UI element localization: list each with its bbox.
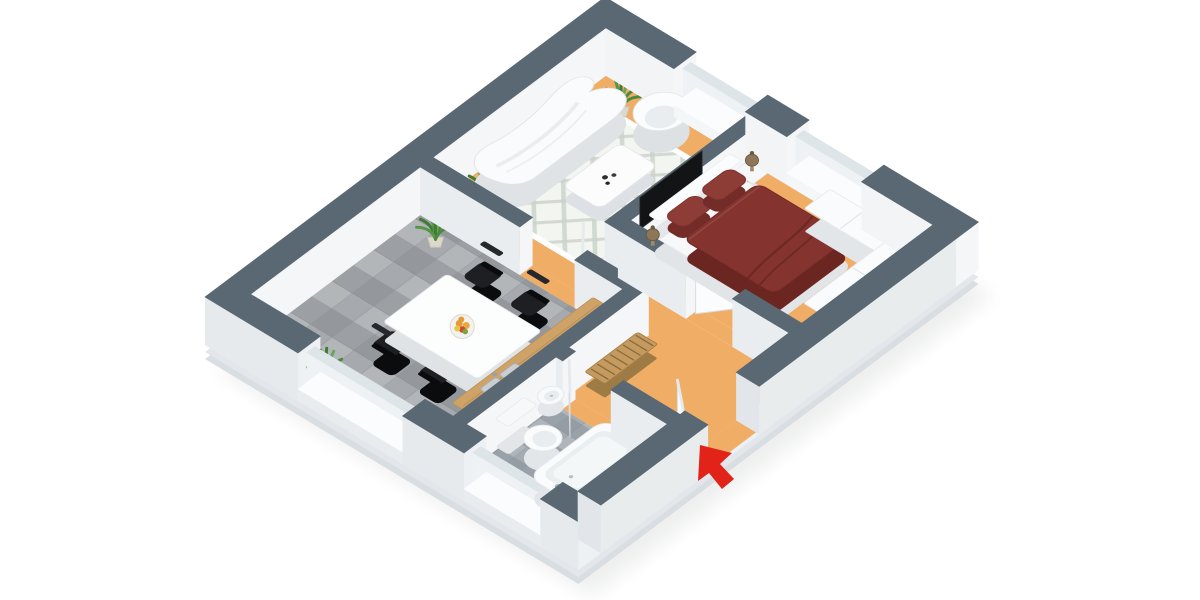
bathroom-door-leaf [569,360,570,437]
floor-plan-stage [0,0,1200,600]
floor-plan-3d-view [0,0,1200,600]
scene-root [205,0,992,596]
fruit-bowl [450,315,474,339]
